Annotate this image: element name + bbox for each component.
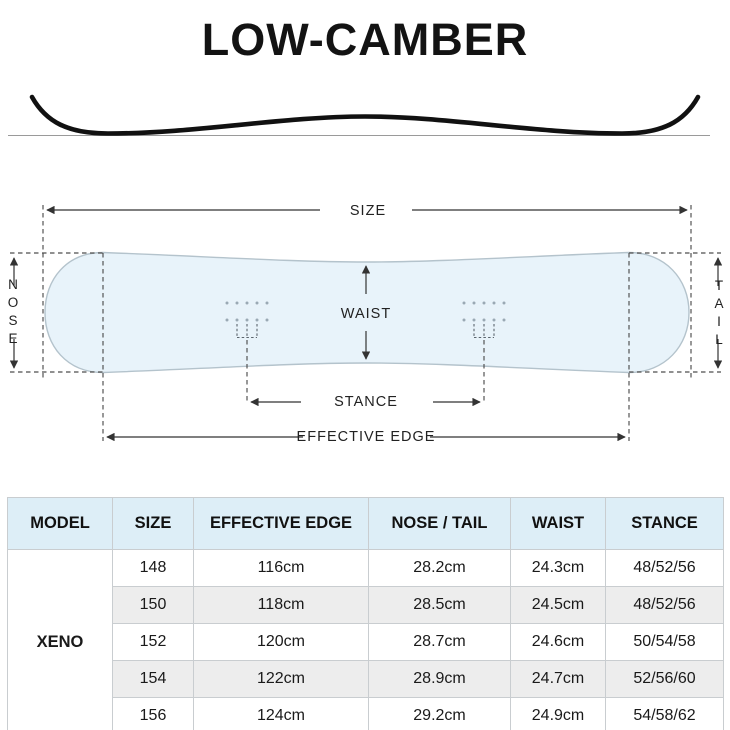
nose-tail-cell: 28.5cm — [369, 587, 511, 624]
size-cell: 150 — [113, 587, 194, 624]
stance-cell: 52/56/60 — [606, 661, 724, 698]
stance-cell: 48/52/56 — [606, 550, 724, 587]
waist-cell: 24.6cm — [511, 624, 606, 661]
table-row: 156 124cm 29.2cm 24.9cm 54/58/62 — [8, 698, 724, 730]
page-title: LOW-CAMBER — [0, 14, 730, 66]
nose-tail-cell: 28.2cm — [369, 550, 511, 587]
header-effective-edge: EFFECTIVE EDGE — [194, 498, 369, 550]
size-cell: 148 — [113, 550, 194, 587]
effective-edge-dimension-label: EFFECTIVE EDGE — [297, 429, 436, 445]
stance-cell: 54/58/62 — [606, 698, 724, 730]
waist-cell: 24.7cm — [511, 661, 606, 698]
header-stance: STANCE — [606, 498, 724, 550]
size-cell: 152 — [113, 624, 194, 661]
camber-profile-curve — [32, 97, 698, 134]
effective-edge-cell: 116cm — [194, 550, 369, 587]
table-row: 154 122cm 28.9cm 24.7cm 52/56/60 — [8, 661, 724, 698]
waist-dimension-label: WAIST — [341, 306, 391, 322]
stance-dimension-label: STANCE — [334, 394, 398, 410]
table-row: XENO 148 116cm 28.2cm 24.3cm 48/52/56 — [8, 550, 724, 587]
header-nose-tail: NOSE / TAIL — [369, 498, 511, 550]
model-name-cell: XENO — [8, 550, 113, 730]
waist-cell: 24.3cm — [511, 550, 606, 587]
effective-edge-cell: 118cm — [194, 587, 369, 624]
waist-cell: 24.5cm — [511, 587, 606, 624]
size-dimension-label: SIZE — [350, 203, 386, 219]
nose-tail-cell: 28.9cm — [369, 661, 511, 698]
table-row: 150 118cm 28.5cm 24.5cm 48/52/56 — [8, 587, 724, 624]
header-size: SIZE — [113, 498, 194, 550]
tail-dimension-label: TAIL — [712, 278, 727, 350]
size-cell: 154 — [113, 661, 194, 698]
effective-edge-cell: 124cm — [194, 698, 369, 730]
stance-cell: 48/52/56 — [606, 587, 724, 624]
effective-edge-cell: 120cm — [194, 624, 369, 661]
table-row: 152 120cm 28.7cm 24.6cm 50/54/58 — [8, 624, 724, 661]
header-model: MODEL — [8, 498, 113, 550]
spec-table-header-row: MODEL SIZE EFFECTIVE EDGE NOSE / TAIL WA… — [8, 498, 724, 550]
camber-profile-figure — [0, 84, 730, 146]
effective-edge-cell: 122cm — [194, 661, 369, 698]
snowboard-spec-sheet: LOW-CAMBER — [0, 0, 730, 730]
header-waist: WAIST — [511, 498, 606, 550]
waist-cell: 24.9cm — [511, 698, 606, 730]
stance-cell: 50/54/58 — [606, 624, 724, 661]
nose-tail-cell: 28.7cm — [369, 624, 511, 661]
spec-table: MODEL SIZE EFFECTIVE EDGE NOSE / TAIL WA… — [7, 497, 724, 730]
nose-tail-cell: 29.2cm — [369, 698, 511, 730]
size-cell: 156 — [113, 698, 194, 730]
nose-dimension-label: NOSE — [6, 277, 21, 349]
